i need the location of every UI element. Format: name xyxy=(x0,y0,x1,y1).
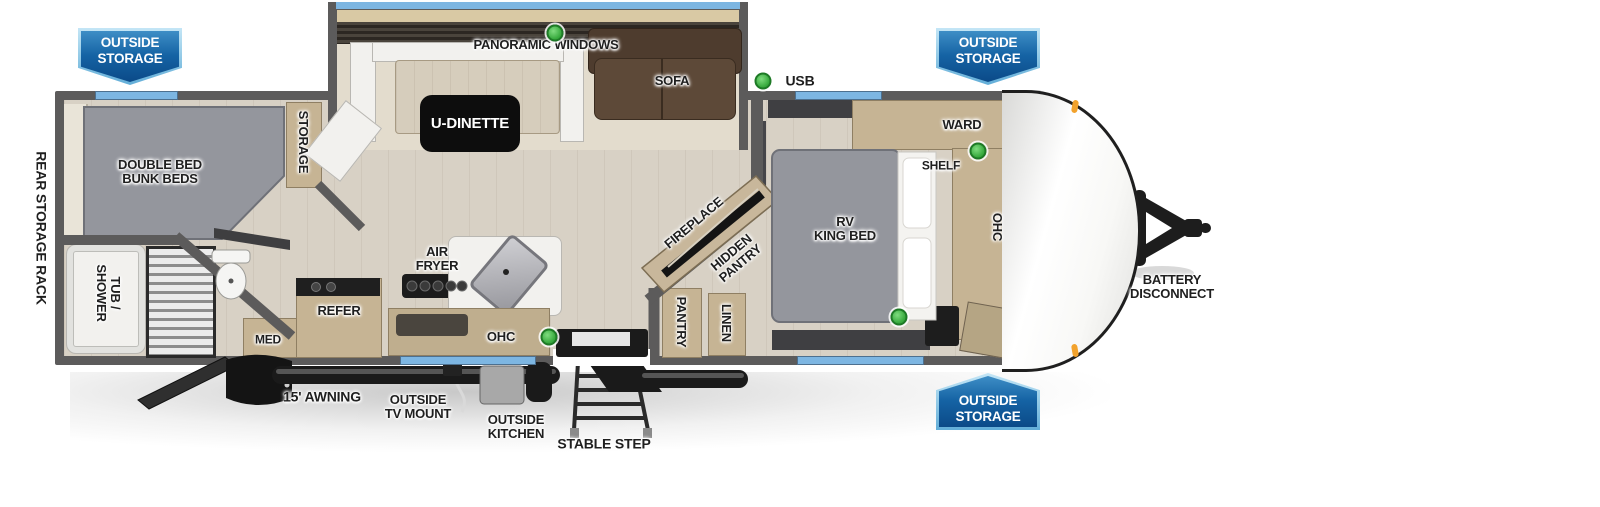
fireplace-insert xyxy=(664,194,762,274)
u-dinette-label: U-DINETTE xyxy=(431,115,509,132)
storage-wall xyxy=(318,184,362,228)
king-bed xyxy=(772,150,900,322)
outside-kitchen-griddle xyxy=(480,366,524,404)
awning-arm xyxy=(638,370,748,388)
plan-overlay xyxy=(0,0,1600,507)
window xyxy=(797,356,924,365)
badge-label: OUTSIDE STORAGE xyxy=(936,35,1040,66)
usb-indicator-bedroom xyxy=(891,309,908,326)
toilet-tank xyxy=(212,250,250,263)
hitch-aframe xyxy=(1146,198,1188,258)
usb-indicator-kitchen xyxy=(541,329,558,346)
usb-indicator-dinette xyxy=(547,25,564,42)
window xyxy=(400,356,536,365)
toilet-drain xyxy=(229,279,234,284)
hitch-coupler xyxy=(1184,219,1202,237)
badge-label: OUTSIDE STORAGE xyxy=(936,393,1040,424)
outside-storage-badge-rear: OUTSIDE STORAGE xyxy=(78,28,182,85)
window xyxy=(95,91,178,100)
hitch-shadow xyxy=(1130,266,1194,280)
sink-faucet xyxy=(503,269,509,275)
floorplan-canvas: U-DINETTE PANORAMIC WINDOWS SOFA USB STO… xyxy=(0,0,1600,507)
pillow xyxy=(903,238,931,308)
awning-arm-highlight xyxy=(642,373,744,378)
usb-indicator-legend xyxy=(755,73,772,90)
outside-storage-badge-front-bottom: OUTSIDE STORAGE xyxy=(936,373,1040,430)
entry-step xyxy=(572,332,630,346)
bunk-bed xyxy=(84,107,284,239)
u-dinette-tag: U-DINETTE xyxy=(420,95,520,152)
burners xyxy=(312,281,468,292)
badge-label: OUTSIDE STORAGE xyxy=(78,35,182,66)
open-compartment-door xyxy=(138,357,236,409)
window xyxy=(795,91,882,100)
hitch-tip xyxy=(1200,223,1211,233)
outside-kitchen-pot xyxy=(526,362,552,402)
ladder-foot xyxy=(570,428,579,438)
vanity-counter xyxy=(214,228,290,250)
pillow xyxy=(903,158,931,228)
ladder-foot xyxy=(643,428,652,438)
usb-indicator-shelf xyxy=(970,143,987,160)
outside-storage-badge-front-top: OUTSIDE STORAGE xyxy=(936,28,1040,85)
